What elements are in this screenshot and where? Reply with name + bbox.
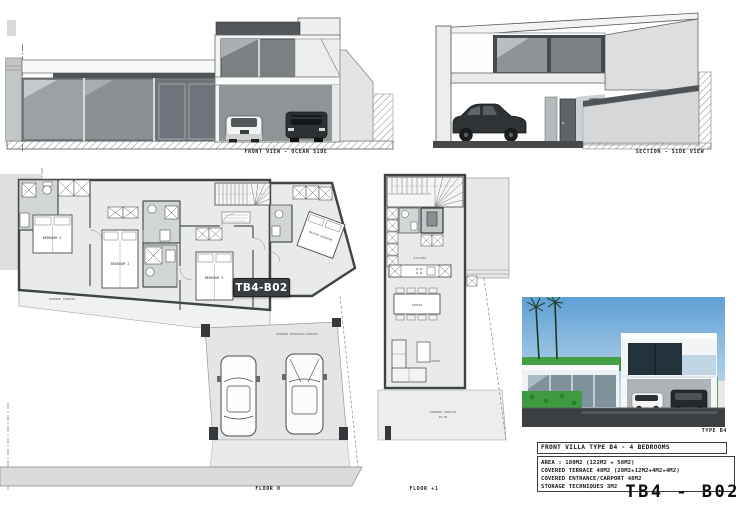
floor0-plan-drawing: BEDROOM 1 BEDROOM 2 BEDROOM 3 MASTER BED… [0,168,370,492]
car-white-front [226,116,262,143]
margin-mark [7,20,16,36]
render-caption: TYPE B4 [645,428,727,434]
title-block-line-terrace: COVERED TERRACE 48M2 (28M2+12M2+4M2+4M2) [541,467,731,475]
left-column [436,26,451,145]
kitchen-label: KITCHEN [414,256,427,260]
title-block-line-area: AREA : 180M2 (122M2 + 58M2) [541,459,731,467]
car-dark-front [286,112,327,142]
floor1-plan-drawing: KITCHEN DINING LOUNGE COVERED TERRACE 48… [375,170,515,470]
staircase [387,177,463,207]
car-top-1 [217,356,260,436]
bedroom3-label: BEDROOM 3 [205,276,224,280]
upper-terrace [465,178,509,278]
section-caption: SECTION - SIDE VIEW [630,149,710,155]
car-side [453,104,526,142]
car-top-2 [282,354,327,434]
bedroom1-label: BEDROOM 1 [43,236,62,240]
terrace-label: COVERED TERRACE [49,297,76,301]
dining-label: DINING [412,303,423,307]
lounge-label: LOUNGE [430,359,441,363]
bathroom-small [399,208,419,233]
asphalt [522,408,725,427]
road [0,467,362,486]
bathroom-3 [143,245,177,287]
ground-left [433,141,583,148]
right-annex [340,50,393,141]
sheet-code: TB4 - B02 [595,482,740,502]
single-storey-volume [22,60,218,141]
retaining-hatch [699,72,711,149]
plan-sheet: FRONT VIEW - OCEAN SIDE [0,0,745,509]
kitchen-counter [389,265,451,277]
bathroom-master [270,205,292,242]
title-block-header: FRONT VILLA TYPE B4 - 4 BEDROOMS [537,442,727,454]
terrace-marker [385,426,391,440]
upper-volume [605,19,698,90]
villa-type-badge[interactable]: TB4-B02 [233,278,290,297]
left-pillar [5,58,22,141]
bathroom-2 [143,201,180,243]
bed-1 [33,215,72,253]
floor1-terrace-area: 48 M2 [439,415,448,419]
lower-level [545,85,699,145]
bed-2 [102,230,138,288]
floor1-terrace-label: COVERED TERRACE [430,410,457,414]
section-drawing [433,6,713,152]
staircase [215,183,270,205]
driveway [210,440,350,467]
floor0-caption: FLOOR 0 [236,486,300,492]
front-elevation-caption: FRONT VIEW - OCEAN SIDE [238,149,334,155]
floor1-caption: FLOOR +1 [396,486,452,492]
single-storey-render [522,357,622,412]
bedroom2-label: BEDROOM 2 [111,262,130,266]
front-elevation-drawing [5,6,395,152]
carport-label: COVERED ENTRANCE/CARPORT [276,332,319,336]
technical-shaft [421,208,443,233]
upper-window-band [451,33,605,83]
note-box [222,212,250,223]
villa-render-image [522,297,725,427]
